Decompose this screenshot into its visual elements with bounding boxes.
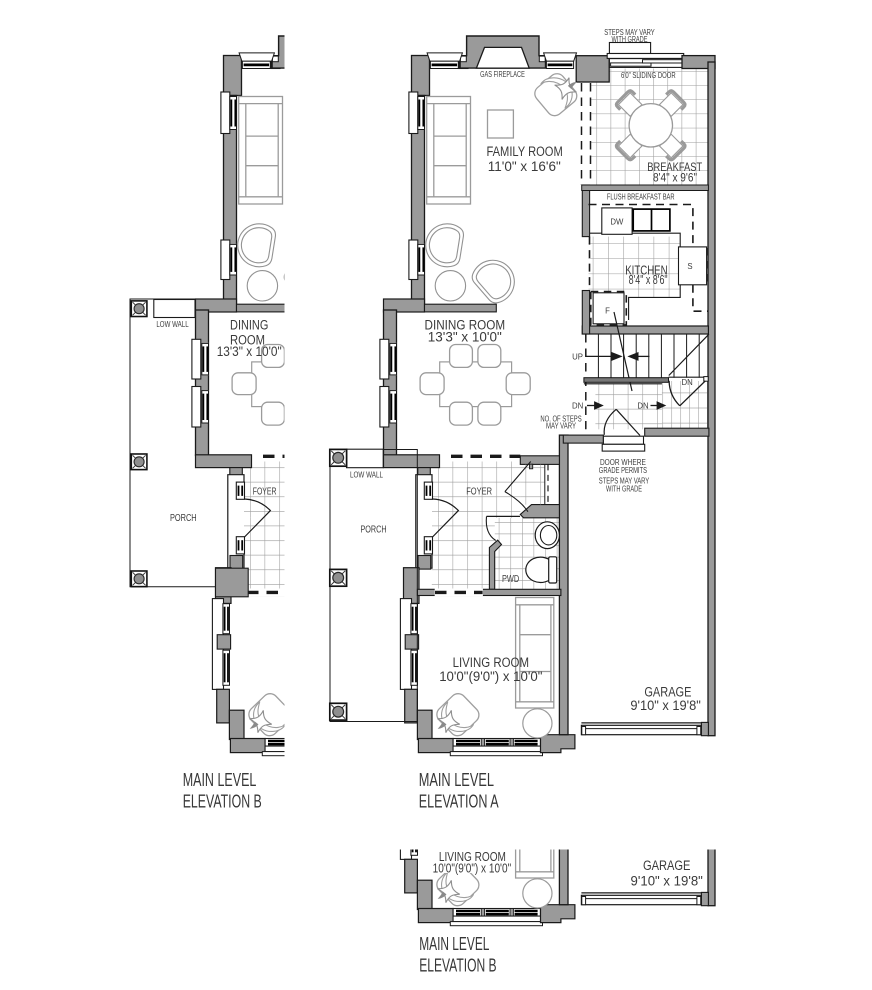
svg-text:DN: DN: [637, 402, 648, 411]
svg-text:UP: UP: [572, 353, 583, 362]
svg-text:13'3" x 10'0": 13'3" x 10'0": [428, 329, 502, 344]
svg-text:FLUSH BREAKFAST BAR: FLUSH BREAKFAST BAR: [607, 192, 675, 201]
svg-text:FOYER: FOYER: [466, 487, 492, 498]
svg-text:ELEVATION A: ELEVATION A: [419, 792, 499, 812]
svg-text:LOW WALL: LOW WALL: [350, 471, 384, 480]
svg-text:DINING: DINING: [230, 318, 268, 333]
svg-text:DN: DN: [572, 401, 583, 410]
svg-text:S: S: [687, 262, 692, 271]
svg-text:8'4" x 9'6": 8'4" x 9'6": [653, 173, 697, 185]
svg-text:10'0"(9'0") x 10'0": 10'0"(9'0") x 10'0": [439, 669, 542, 684]
svg-text:WITH GRADE: WITH GRADE: [612, 35, 648, 44]
svg-text:F: F: [605, 307, 610, 316]
svg-text:9'10" x 19'8": 9'10" x 19'8": [631, 873, 703, 888]
svg-text:11'0" x 16'6": 11'0" x 16'6": [488, 159, 561, 174]
svg-text:DW: DW: [610, 218, 624, 227]
svg-text:GAS FIREPLACE: GAS FIREPLACE: [480, 70, 525, 79]
svg-text:GRADE PERMITS: GRADE PERMITS: [599, 466, 647, 475]
svg-text:PWD: PWD: [502, 574, 519, 585]
svg-text:ELEVATION B: ELEVATION B: [419, 956, 496, 976]
svg-text:MAIN LEVEL: MAIN LEVEL: [183, 770, 257, 790]
svg-text:6'0" SLIDING DOOR: 6'0" SLIDING DOOR: [621, 71, 676, 80]
svg-text:MAIN LEVEL: MAIN LEVEL: [419, 770, 494, 790]
svg-text:DN: DN: [681, 378, 692, 387]
svg-text:FAMILY ROOM: FAMILY ROOM: [486, 144, 562, 159]
svg-text:10'0"(9'0") x 10'0": 10'0"(9'0") x 10'0": [433, 861, 512, 875]
svg-text:PORCH: PORCH: [360, 524, 386, 535]
svg-text:MAY VARY: MAY VARY: [546, 422, 577, 431]
svg-text:PORCH: PORCH: [170, 513, 197, 524]
svg-text:ELEVATION B: ELEVATION B: [183, 792, 262, 812]
svg-text:LOW WALL: LOW WALL: [156, 320, 189, 329]
svg-text:LIVING ROOM: LIVING ROOM: [453, 655, 529, 670]
svg-text:13'3" x 10'0": 13'3" x 10'0": [217, 344, 282, 359]
svg-text:8'4" x 8'6": 8'4" x 8'6": [629, 273, 668, 287]
svg-text:WITH GRADE: WITH GRADE: [606, 484, 642, 493]
svg-text:GARAGE: GARAGE: [643, 858, 691, 873]
svg-text:FOYER: FOYER: [253, 487, 277, 498]
svg-text:MAIN LEVEL: MAIN LEVEL: [419, 934, 489, 954]
svg-text:9'10" x 19'8": 9'10" x 19'8": [630, 698, 701, 713]
